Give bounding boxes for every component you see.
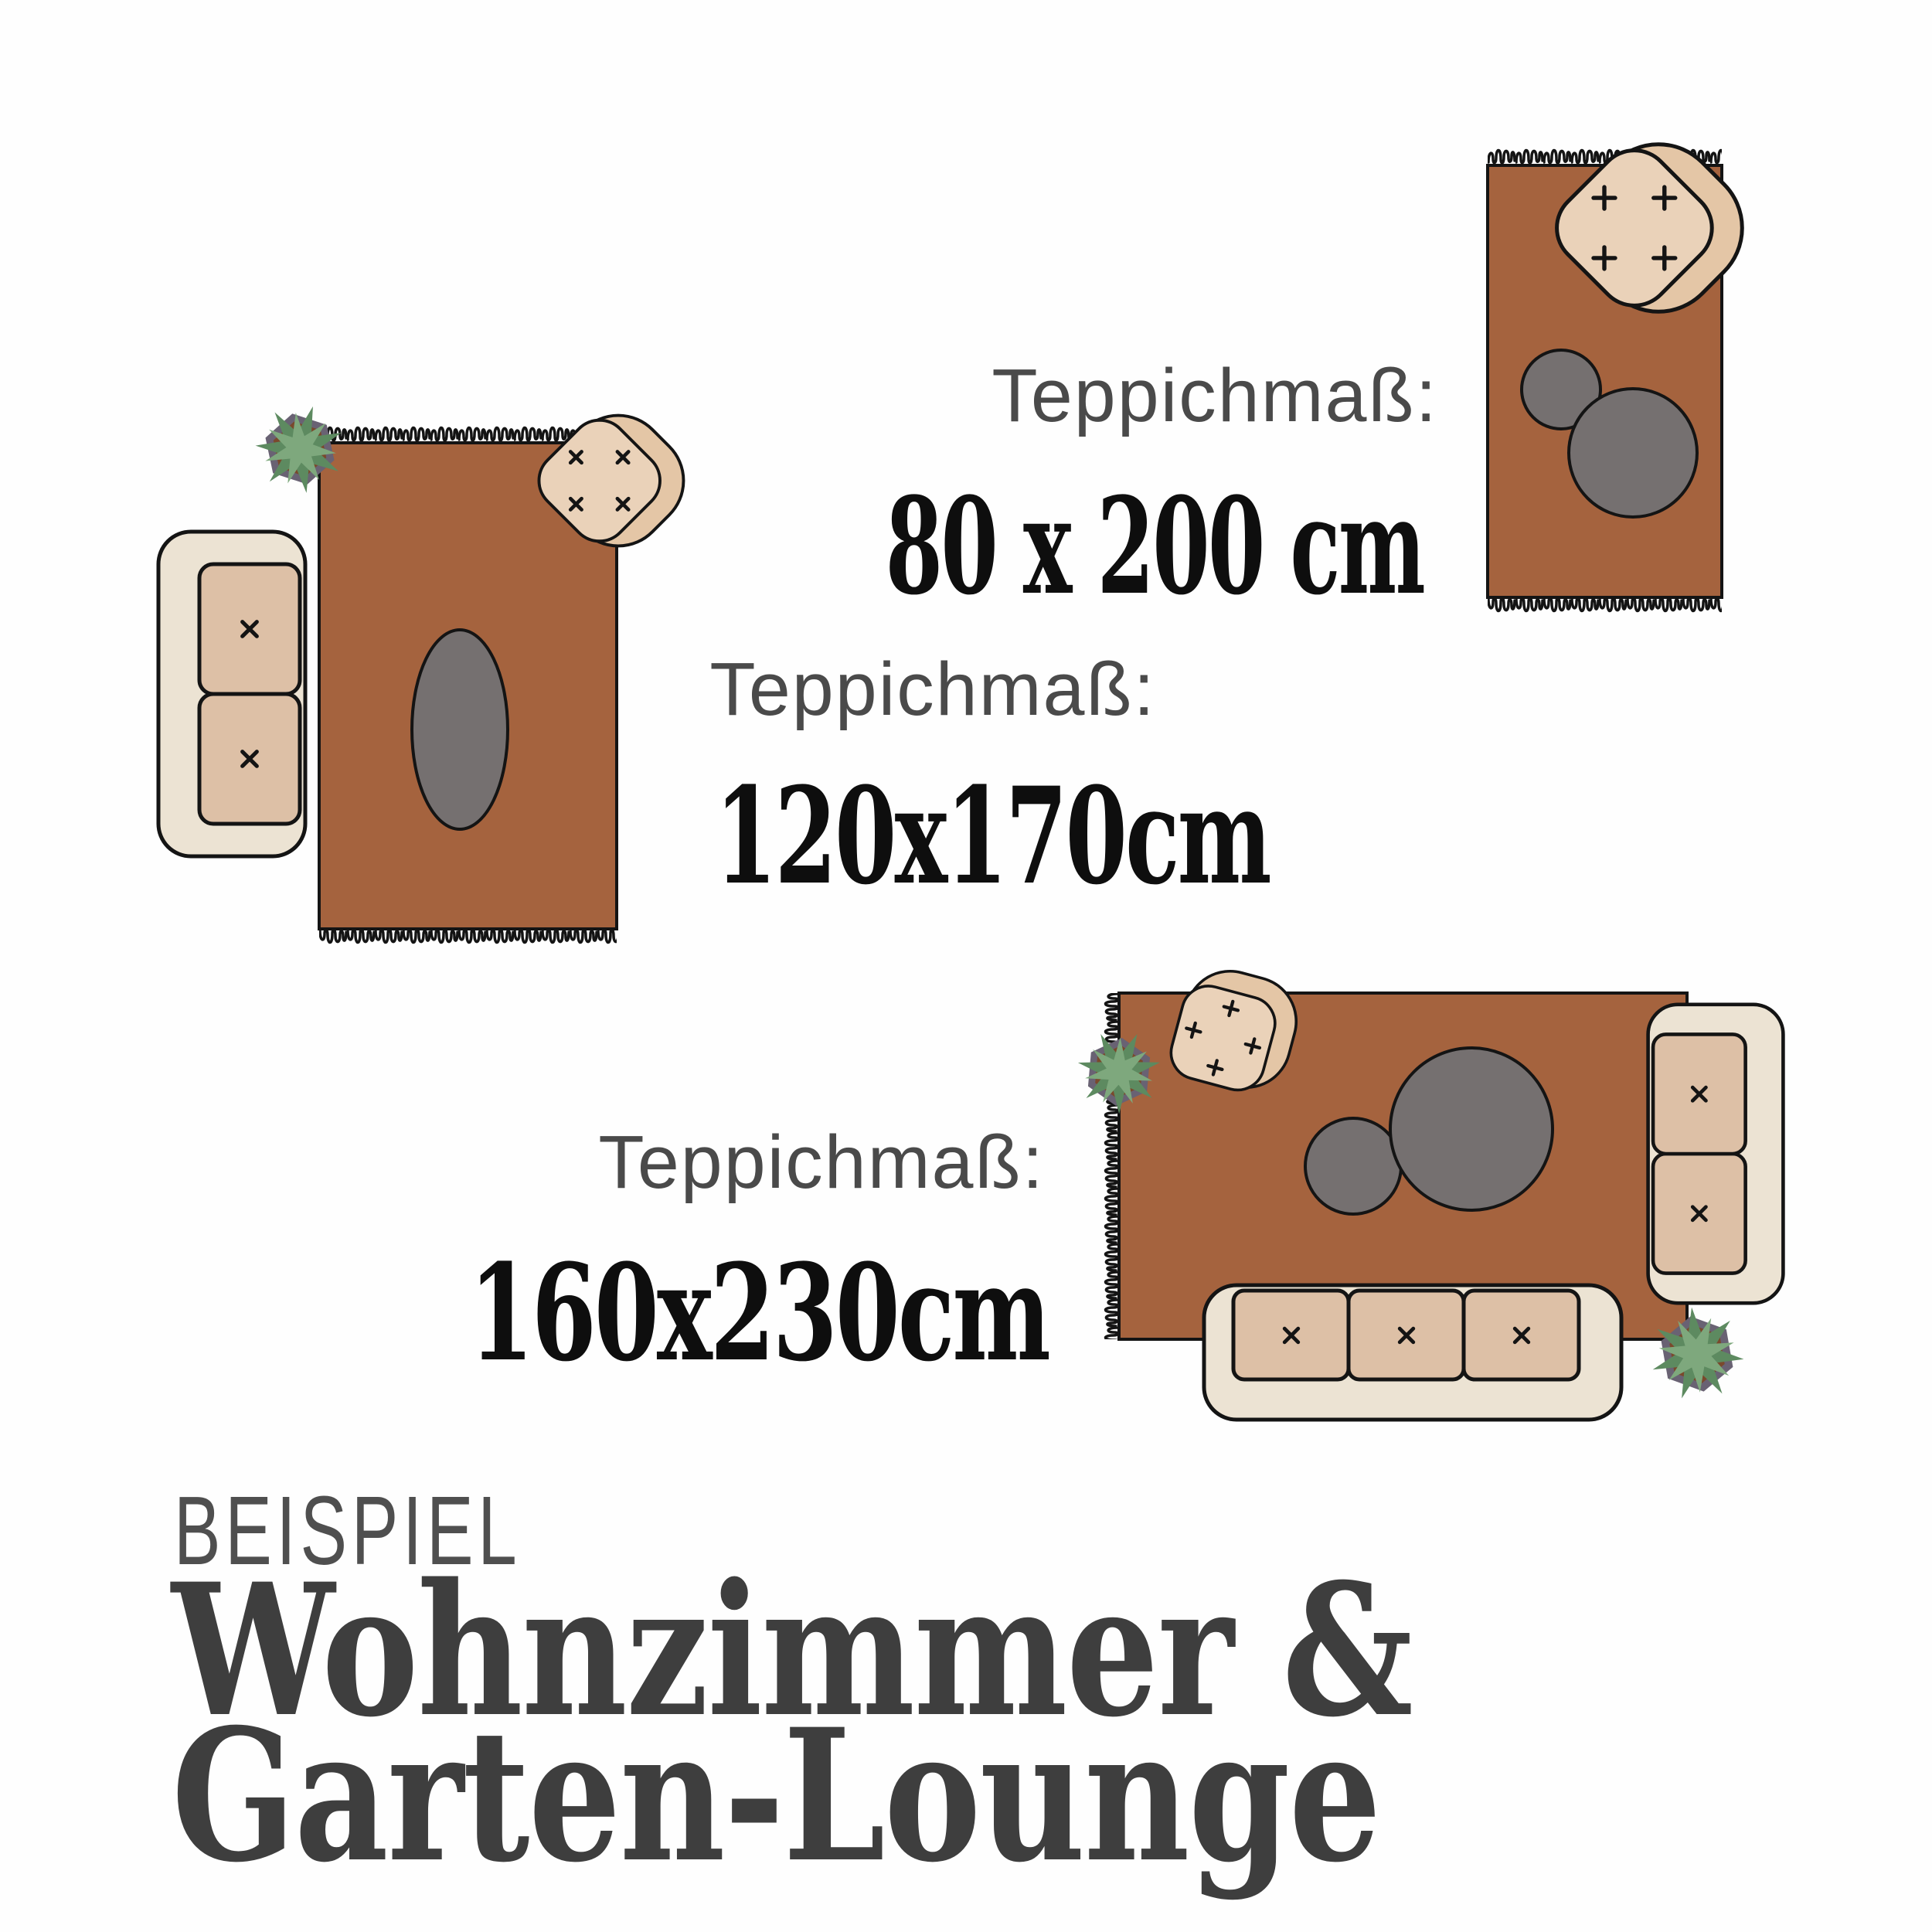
oval-coffee-table (412, 630, 508, 829)
rug-fringe-bottom (1488, 597, 1722, 617)
scene-80x200 (1488, 115, 1767, 617)
side-table-large (1390, 1048, 1553, 1210)
size-label-160x230: Teppichmaß: (598, 1124, 1044, 1199)
three-seat-sofa (1204, 1285, 1621, 1420)
rug-size-infographic: { "scenes": [ { "id": "scene-80x200", "l… (0, 0, 1932, 1932)
page-title: Wohnzimmer & Garten-Lounge (172, 1578, 1412, 1869)
size-value-160x230: 160x230cm (469, 1247, 1049, 1379)
side-table-large (1569, 389, 1697, 517)
page-title-line2: Garten-Lounge (172, 1723, 1412, 1869)
scene-120x170 (158, 386, 703, 949)
size-label-120x170: Teppichmaß: (709, 651, 1155, 726)
size-label-80x200: Teppichmaß: (992, 358, 1437, 433)
side-table-small (1305, 1118, 1401, 1214)
two-seat-sofa (158, 532, 305, 856)
size-value-120x170: 120x170cm (715, 770, 1270, 903)
size-value-80x200: 80 x 200 cm (886, 480, 1423, 613)
two-seat-sofa (1648, 1005, 1784, 1303)
rug-fringe-bottom (319, 929, 617, 949)
scene-160x230 (1057, 961, 1783, 1422)
